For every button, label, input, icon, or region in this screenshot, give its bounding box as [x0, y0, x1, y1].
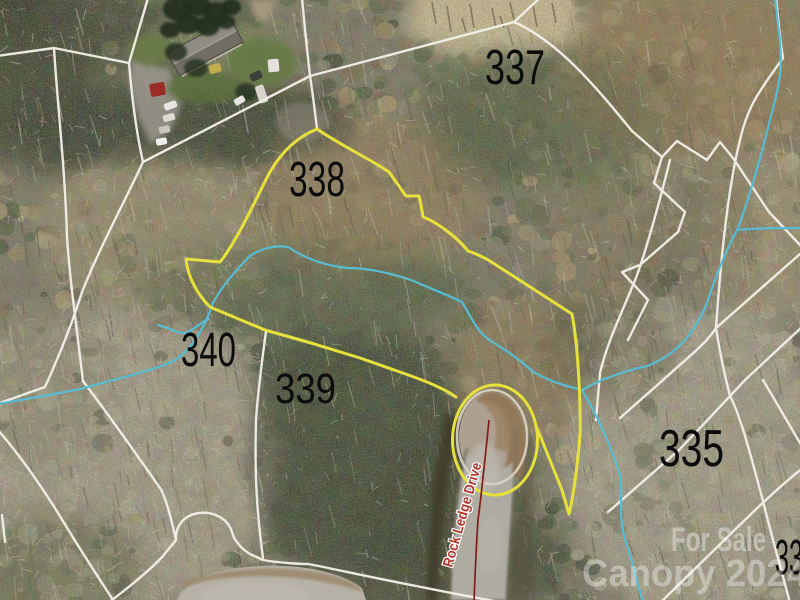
svg-text:340: 340 — [181, 324, 236, 377]
svg-text:338: 338 — [289, 153, 345, 207]
svg-text:Canopy 2024: Canopy 2024 — [582, 553, 800, 595]
svg-text:335: 335 — [659, 420, 724, 478]
svg-text:339: 339 — [275, 365, 336, 413]
svg-text:337: 337 — [485, 41, 545, 95]
